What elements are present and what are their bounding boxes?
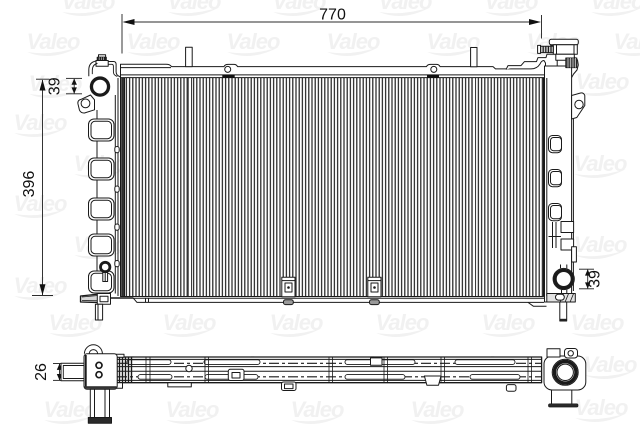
- svg-text:39: 39: [47, 77, 64, 95]
- svg-text:26: 26: [33, 363, 50, 381]
- svg-text:396: 396: [21, 171, 38, 198]
- svg-text:39: 39: [587, 270, 604, 288]
- svg-text:770: 770: [319, 7, 346, 24]
